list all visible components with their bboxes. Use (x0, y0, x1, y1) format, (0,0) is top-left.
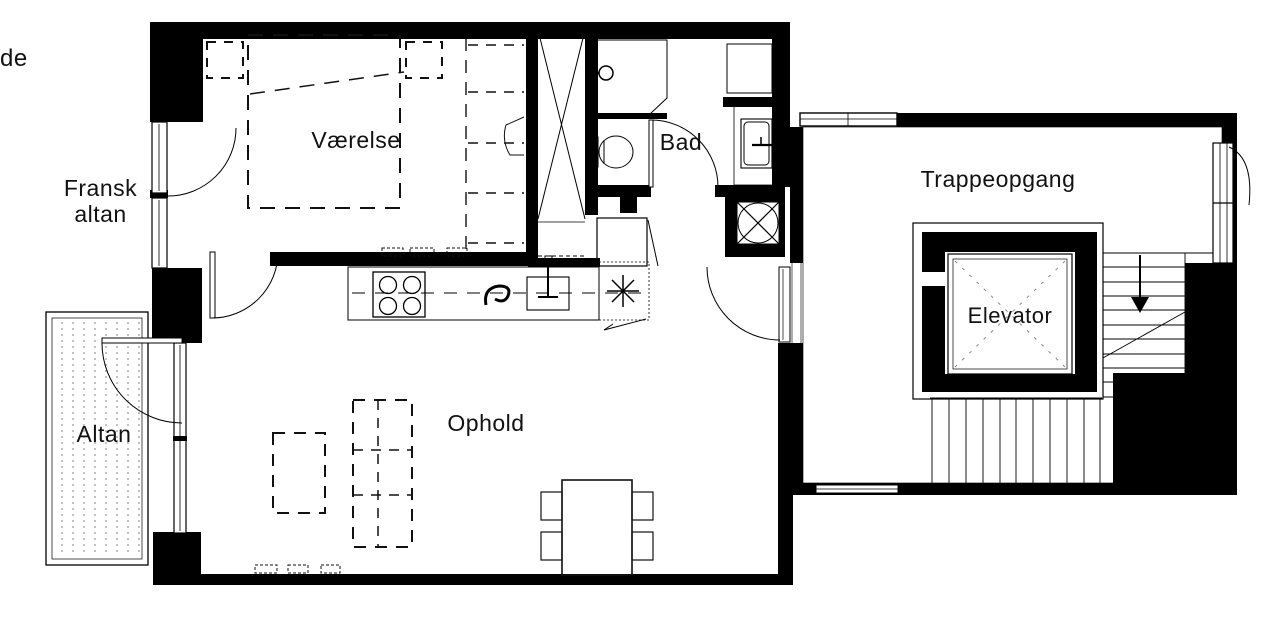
floorplan-canvas: de Fransk altan Værelse Bad Ophold Altan… (0, 0, 1270, 621)
room-label-bad: Bad (650, 130, 712, 154)
stairs-down-arrow-icon (1131, 255, 1149, 313)
dining-table (562, 480, 632, 575)
stairs-lower-flight (930, 398, 1102, 483)
room-label-fransk-altan-1: Fransk (48, 176, 153, 200)
floorplan-drawing (0, 0, 1270, 621)
sofa (353, 400, 412, 547)
door-swing-arc (707, 267, 780, 340)
shower-area (590, 40, 667, 114)
drain-swirl-icon (486, 286, 509, 305)
washbasin-icon (599, 66, 613, 80)
coffee-table (273, 433, 325, 513)
bathroom (587, 40, 773, 187)
ceiling-lamp-icon (607, 275, 639, 307)
wardrobe-door-swing (504, 117, 524, 155)
fridge-cabinet (597, 218, 647, 266)
stair-walkline (1103, 312, 1185, 358)
room-label-ophold: Ophold (426, 411, 546, 435)
bedroom-door (210, 252, 278, 318)
apartment-walls (150, 22, 793, 585)
chair (541, 492, 562, 520)
kitchen (348, 218, 658, 330)
chair (632, 492, 653, 520)
room-label-altan: Altan (64, 422, 144, 446)
room-label-trappeopgang: Trappeopgang (917, 167, 1079, 191)
room-label-elevator: Elevator (950, 304, 1070, 327)
radiator-marks-living (255, 565, 340, 573)
entry-door (707, 267, 790, 342)
door-swing-arc (168, 128, 236, 196)
wardrobe (466, 38, 524, 254)
edge-text-fragment: de (0, 46, 36, 71)
chair (632, 532, 653, 560)
bed (248, 35, 400, 208)
washing-machine-icon (741, 119, 772, 168)
nightstand-right (406, 42, 442, 78)
nightstand-left (207, 42, 243, 78)
closet-x-cabinet (538, 30, 585, 256)
duct-shaft-icon (725, 185, 785, 257)
room-label-fransk-altan-2: altan (48, 202, 153, 226)
stairwell-top-window (800, 113, 897, 126)
chair (541, 532, 562, 560)
door-swing-arc (212, 252, 278, 318)
elevator-door-opening (920, 272, 947, 286)
shower-stall (727, 44, 772, 93)
room-label-vaerelse: Værelse (296, 128, 416, 152)
bedroom-furniture (207, 35, 442, 208)
